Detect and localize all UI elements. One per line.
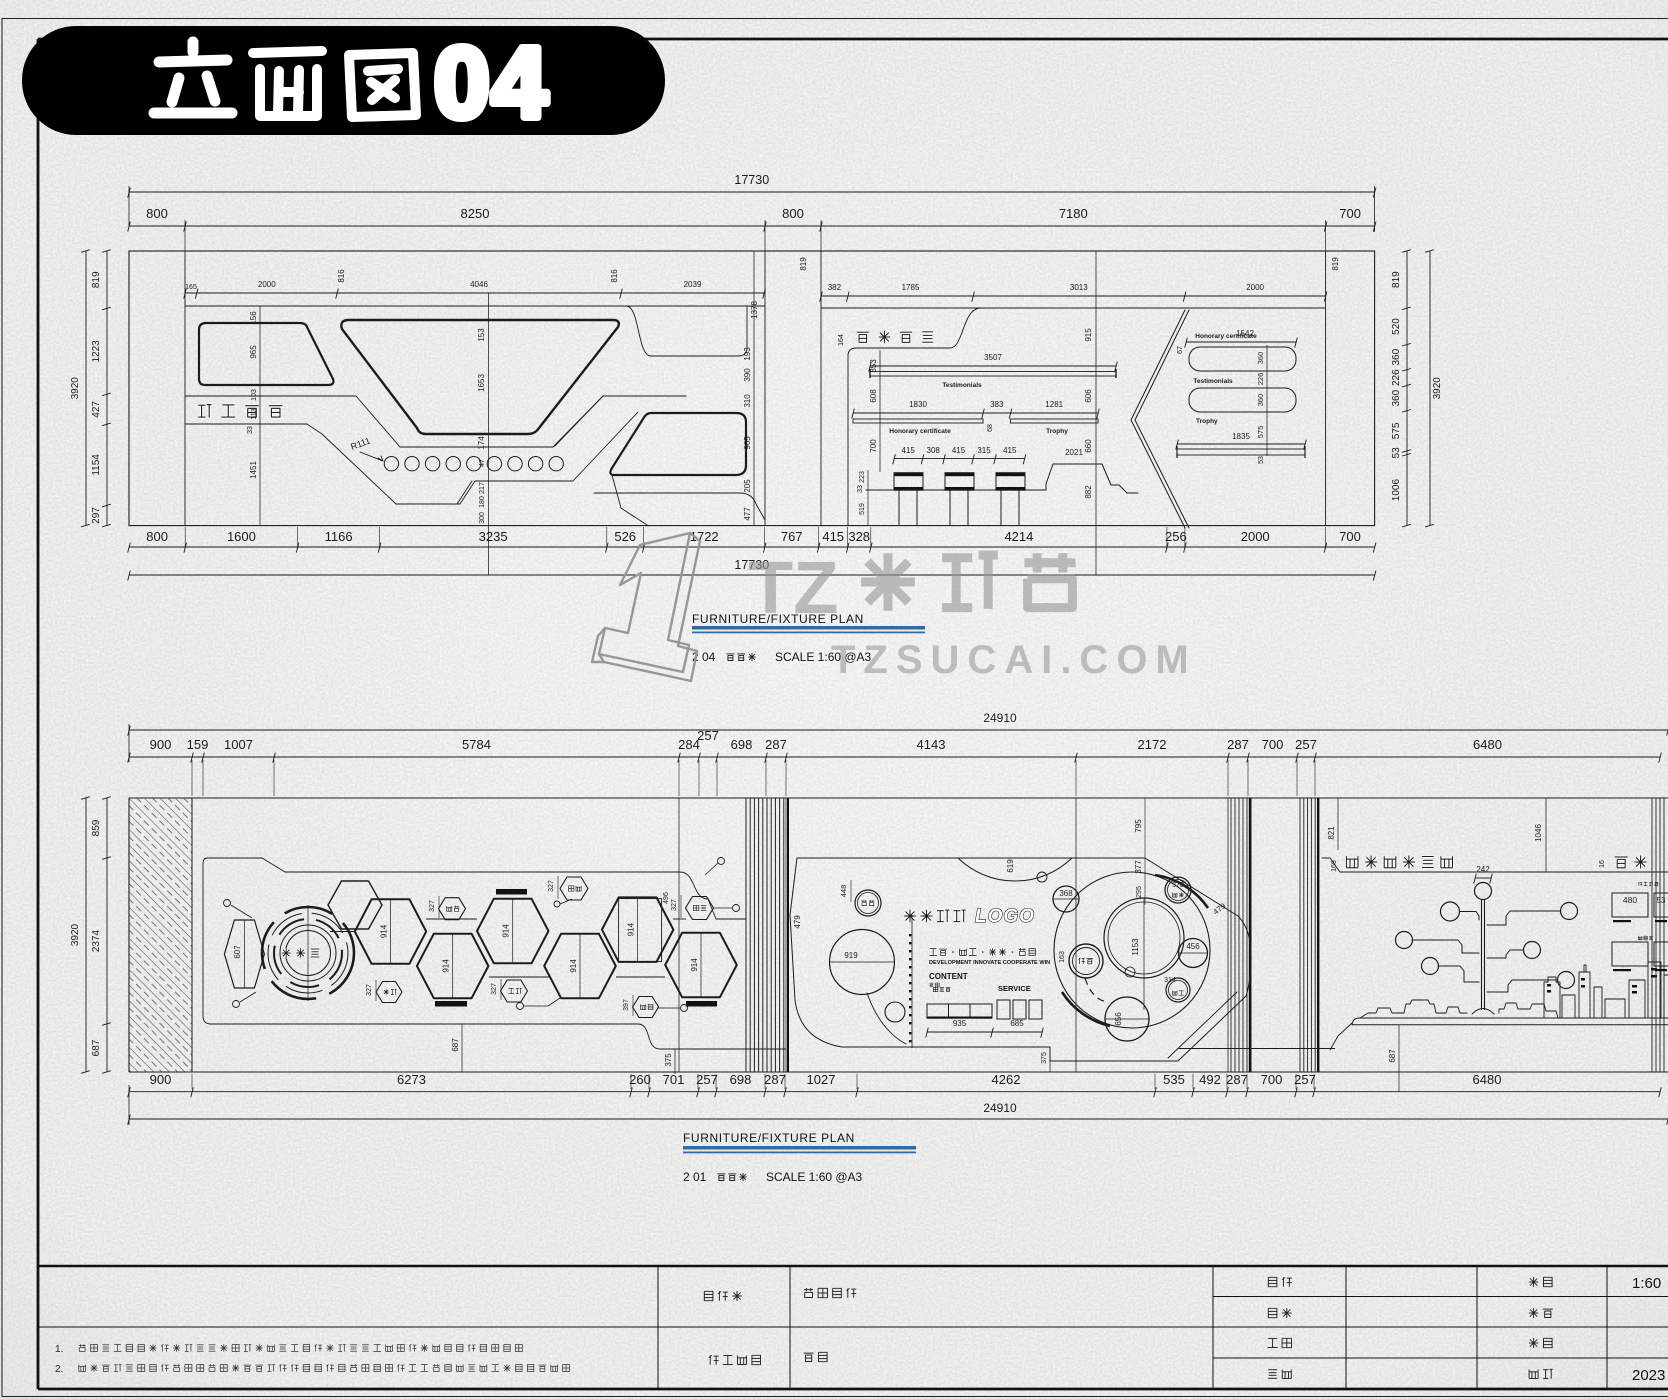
svg-text:914: 914 [690,958,699,972]
svg-text:24910: 24910 [983,1101,1017,1115]
svg-text:3013: 3013 [1070,283,1088,292]
svg-text:169: 169 [1331,860,1338,872]
svg-text:480: 480 [1623,895,1637,905]
svg-text:397: 397 [623,999,630,1011]
svg-text:415: 415 [822,529,844,544]
svg-text:Honorary certificate: Honorary certificate [889,428,951,435]
svg-text:1:60: 1:60 [1632,1275,1661,1292]
svg-text:882: 882 [1084,485,1093,499]
svg-text:360: 360 [1391,389,1402,406]
svg-text:800: 800 [146,529,168,544]
svg-text:816: 816 [337,269,346,283]
svg-text:327: 327 [491,983,498,995]
svg-text:700: 700 [869,439,878,453]
svg-text:687: 687 [451,1038,460,1052]
svg-text:5784: 5784 [462,737,491,752]
svg-text:153: 153 [477,328,486,342]
svg-text:287: 287 [764,1072,786,1087]
svg-text:33: 33 [247,426,254,434]
svg-text:360: 360 [1256,394,1265,407]
svg-text:701: 701 [663,1072,685,1087]
svg-text:1153: 1153 [1131,938,1140,956]
svg-text:1154: 1154 [91,454,102,476]
svg-text:327: 327 [548,880,555,892]
svg-text:257: 257 [696,1072,718,1087]
svg-text:8250: 8250 [461,206,490,221]
svg-text:2000: 2000 [258,280,276,289]
svg-text:360: 360 [1391,348,1402,365]
svg-text:415: 415 [1003,446,1017,455]
svg-text:698: 698 [731,737,753,752]
svg-text:FURNITURE/FIXTURE PLAN: FURNITURE/FIXTURE PLAN [683,1131,855,1145]
svg-text:308: 308 [927,446,941,455]
svg-text:698: 698 [730,1072,752,1087]
svg-text:04: 04 [434,27,549,139]
svg-text:4046: 4046 [470,280,488,289]
svg-text:819: 819 [799,257,808,271]
svg-text:415: 415 [902,446,916,455]
svg-text:377: 377 [1134,860,1143,874]
svg-text:800: 800 [146,206,168,221]
svg-text:2039: 2039 [684,280,702,289]
svg-text:821: 821 [1327,826,1336,840]
svg-text:205: 205 [743,479,752,493]
svg-text:217: 217 [479,482,486,494]
svg-text:SERVICE: SERVICE [998,984,1031,993]
svg-text:TZSUCAI.COM: TZSUCAI.COM [831,638,1197,682]
svg-text:315: 315 [977,446,991,455]
svg-text:1281: 1281 [1045,400,1063,409]
svg-text:33: 33 [857,485,864,493]
svg-text:287: 287 [1226,1072,1248,1087]
svg-text:4262: 4262 [992,1072,1021,1087]
svg-text:1.: 1. [55,1344,63,1355]
svg-text:257: 257 [1295,737,1317,752]
svg-text:3920: 3920 [70,377,81,400]
svg-text:914: 914 [569,959,578,973]
svg-text:608: 608 [869,389,878,403]
svg-text:Trophy: Trophy [1196,418,1218,425]
svg-text:575: 575 [1391,422,1402,439]
svg-text:6480: 6480 [1473,737,1502,752]
svg-text:113: 113 [251,408,258,419]
svg-text:1166: 1166 [325,529,353,544]
svg-text:700: 700 [1261,1072,1283,1087]
svg-text:TZ: TZ [748,546,838,629]
svg-text:914: 914 [502,924,511,938]
svg-text:900: 900 [150,737,172,752]
svg-text:800: 800 [782,206,804,221]
svg-text:4143: 4143 [917,737,946,752]
svg-text:900: 900 [150,1072,172,1087]
svg-text:700: 700 [1262,737,1284,752]
svg-text:535: 535 [1163,1072,1185,1087]
svg-text:606: 606 [1084,389,1093,403]
svg-text:919: 919 [844,951,858,960]
svg-text:300: 300 [479,512,486,524]
svg-text:159: 159 [187,737,209,752]
svg-text:965: 965 [743,436,752,450]
svg-text:68: 68 [987,424,994,432]
svg-text:479: 479 [793,915,802,929]
svg-text:SCALE 1:60 @A3: SCALE 1:60 @A3 [766,1170,863,1184]
svg-text:180: 180 [479,496,486,508]
svg-text:327: 327 [429,900,436,912]
svg-text:526: 526 [614,529,636,544]
svg-text:156: 156 [249,311,258,325]
svg-text:2023: 2023 [1632,1367,1665,1384]
svg-text:2000: 2000 [1246,283,1264,292]
svg-text:914: 914 [442,959,451,973]
svg-text:1785: 1785 [902,283,920,292]
svg-text:53: 53 [1258,456,1265,464]
svg-text:383: 383 [990,400,1004,409]
svg-text:767: 767 [781,529,803,544]
svg-text:1600: 1600 [227,529,256,544]
svg-text:223: 223 [859,471,866,483]
svg-text:260: 260 [629,1072,651,1087]
svg-text:795: 795 [1134,819,1143,833]
svg-text:819: 819 [1391,271,1402,288]
svg-text:1223: 1223 [91,340,102,363]
svg-text:700: 700 [1339,529,1361,544]
svg-text:3920: 3920 [1432,377,1443,400]
svg-text:1378: 1378 [750,301,759,319]
svg-text:607: 607 [233,945,242,959]
svg-text:4214: 4214 [1004,529,1033,544]
svg-text:687: 687 [1388,1049,1397,1063]
svg-text:103: 103 [251,389,258,401]
svg-text:LOGO: LOGO [975,906,1035,927]
svg-text:685: 685 [1010,1019,1024,1028]
svg-text:328: 328 [848,529,870,544]
svg-text:375: 375 [664,1053,673,1067]
svg-text:448: 448 [839,885,848,898]
svg-text:3920: 3920 [70,923,81,946]
svg-text:700: 700 [1339,206,1361,221]
svg-text:3235: 3235 [479,529,508,544]
svg-text:53: 53 [1657,896,1666,905]
svg-text:287: 287 [765,737,787,752]
svg-text:2 01: 2 01 [683,1170,707,1184]
svg-text:935: 935 [953,1019,967,1028]
svg-text:7180: 7180 [1059,206,1088,221]
svg-text:1027: 1027 [807,1072,836,1087]
svg-text:415: 415 [952,446,966,455]
svg-text:226: 226 [1256,373,1265,386]
svg-text:314: 314 [1164,977,1176,984]
svg-text:310: 310 [743,394,752,408]
svg-text:619: 619 [1006,859,1015,873]
svg-text:1542: 1542 [1236,329,1254,338]
svg-text:164: 164 [838,334,845,346]
svg-text:297: 297 [91,507,102,524]
svg-text:382: 382 [828,283,842,292]
svg-text:6480: 6480 [1473,1072,1502,1087]
svg-text:2.: 2. [55,1364,63,1375]
svg-text:496: 496 [663,892,670,904]
svg-text:6273: 6273 [397,1072,426,1087]
svg-text:1653: 1653 [477,374,486,392]
svg-text:914: 914 [627,922,636,936]
svg-text:1046: 1046 [1534,824,1543,842]
svg-text:1007: 1007 [224,737,253,752]
svg-text:575: 575 [1256,426,1265,439]
svg-text:656: 656 [1114,1012,1123,1026]
svg-text:67: 67 [1177,346,1184,354]
svg-text:427: 427 [91,401,102,418]
svg-text:859: 859 [91,819,102,836]
svg-text:226: 226 [1391,369,1402,386]
svg-text:965: 965 [249,345,258,359]
svg-text:819: 819 [1331,257,1340,271]
svg-text:295: 295 [1136,886,1143,898]
svg-text:Trophy: Trophy [1046,428,1068,435]
svg-text:287: 287 [1227,737,1249,752]
svg-text:2021: 2021 [1065,448,1083,457]
svg-text:360: 360 [1256,352,1265,365]
svg-text:Testimonials: Testimonials [942,382,982,389]
svg-text:2000: 2000 [1241,529,1270,544]
svg-text:53: 53 [1391,447,1402,459]
svg-text:368: 368 [1059,889,1073,898]
svg-text:1451: 1451 [249,461,258,479]
svg-text:163: 163 [1059,951,1066,963]
svg-text:256: 256 [1165,529,1187,544]
svg-text:Testimonials: Testimonials [1193,378,1233,385]
svg-text:165: 165 [185,284,197,291]
svg-text:687: 687 [91,1039,102,1056]
svg-text:373: 373 [1172,882,1184,889]
svg-text:CONTENT: CONTENT [929,972,968,981]
svg-text:915: 915 [1084,328,1093,342]
svg-text:2172: 2172 [1138,737,1167,752]
svg-text:3507: 3507 [984,353,1002,362]
svg-text:477: 477 [743,507,752,521]
svg-text:816: 816 [610,269,619,283]
svg-text:456: 456 [1186,942,1200,951]
svg-text:390: 390 [743,368,752,382]
svg-text:DEVELOPMENT INNOVATE COOPERATE: DEVELOPMENT INNOVATE COOPERATE WIN [929,960,1050,966]
svg-text:242: 242 [1476,865,1490,874]
svg-text:327: 327 [671,899,678,911]
svg-text:660: 660 [1084,439,1093,453]
svg-text:17730: 17730 [734,173,769,187]
svg-text:519: 519 [859,503,866,515]
svg-text:24910: 24910 [983,711,1017,725]
svg-text:914: 914 [380,924,389,938]
svg-text:2374: 2374 [91,929,102,952]
svg-text:257: 257 [697,728,719,743]
svg-text:174: 174 [477,436,486,450]
svg-text:492: 492 [1199,1072,1221,1087]
svg-text:819: 819 [91,271,102,288]
svg-text:16: 16 [1599,860,1606,868]
svg-text:257: 257 [1294,1072,1316,1087]
svg-text:327: 327 [366,984,373,996]
svg-text:375: 375 [1041,1052,1048,1064]
svg-text:520: 520 [1391,318,1402,335]
svg-text:1835: 1835 [1232,432,1250,441]
svg-text:1006: 1006 [1391,479,1402,502]
svg-text:1830: 1830 [909,400,927,409]
